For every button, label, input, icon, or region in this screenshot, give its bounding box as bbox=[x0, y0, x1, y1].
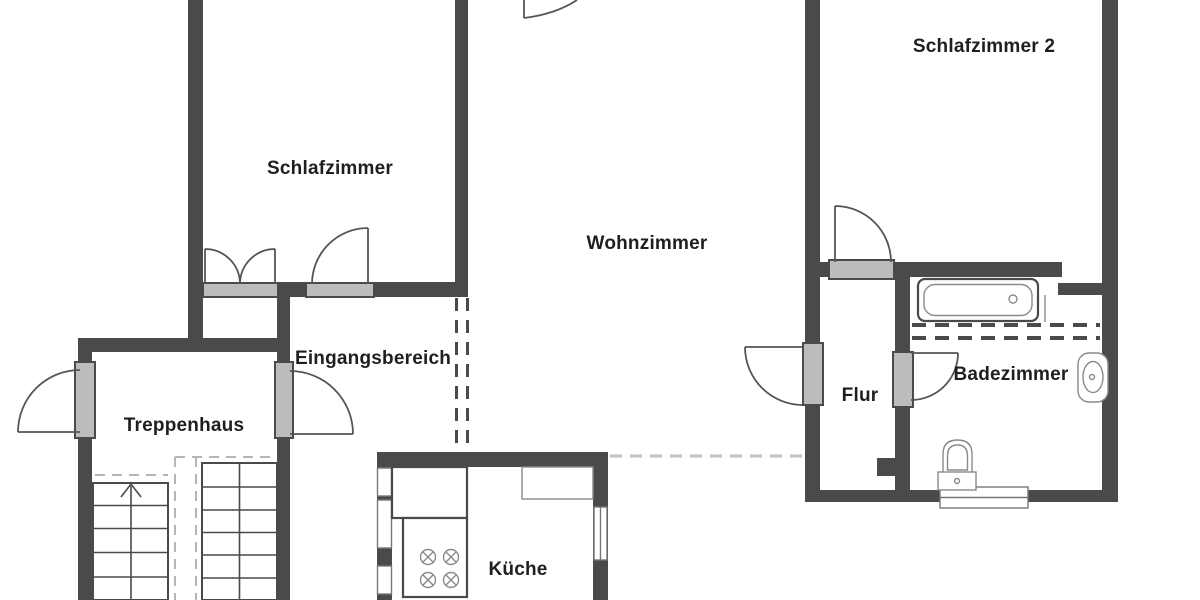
closet-double-door bbox=[205, 249, 275, 284]
windows bbox=[378, 467, 1029, 594]
closet-door-sill bbox=[203, 283, 278, 297]
schlafzimmer-left-wall bbox=[188, 0, 203, 352]
room-label-wohnzimmer: Wohnzimmer bbox=[587, 233, 708, 255]
balcony-door bbox=[524, 0, 577, 18]
flur-door bbox=[745, 347, 803, 405]
bathtub bbox=[918, 279, 1038, 321]
schlafzimmer2-door-sill bbox=[829, 260, 894, 279]
schlafzimmer-right-wall bbox=[455, 0, 468, 297]
stairs bbox=[93, 457, 277, 600]
treppenhaus-exterior-door-sill bbox=[75, 362, 95, 438]
room-label-flur: Flur bbox=[842, 385, 879, 407]
divider-wall-stub bbox=[877, 458, 895, 476]
kueche-right-window bbox=[594, 507, 607, 560]
room-label-schlafzimmer: Schlafzimmer bbox=[267, 158, 393, 180]
stair-flight-right bbox=[202, 463, 277, 600]
room-label-treppenhaus: Treppenhaus bbox=[124, 415, 244, 437]
room-label-badezimmer: Badezimmer bbox=[954, 364, 1069, 386]
bad-door-sill bbox=[893, 352, 913, 407]
treppenhaus-exterior-door bbox=[18, 370, 80, 432]
toilet bbox=[938, 440, 976, 490]
room-label-schlafzimmer-2: Schlafzimmer 2 bbox=[913, 36, 1055, 58]
bad-door bbox=[911, 353, 958, 400]
right-outer-wall bbox=[1102, 0, 1118, 502]
floor-plan: Schlafzimmer Wohnzimmer Schlafzimmer 2 E… bbox=[0, 0, 1200, 600]
apartment-entry-door-sill bbox=[275, 362, 293, 438]
apartment-entry-door bbox=[290, 371, 353, 434]
schlafzimmer-door-sill bbox=[306, 283, 374, 297]
stair-flight-left bbox=[93, 483, 168, 600]
schlafzimmer2-door bbox=[835, 206, 891, 262]
kitchen-counter bbox=[392, 467, 467, 518]
wohnzimmer-right-wall bbox=[805, 0, 820, 497]
flur-door-sill bbox=[803, 343, 823, 405]
floor-plan-drawing bbox=[0, 0, 1200, 600]
room-label-eingangsbereich: Eingangsbereich bbox=[295, 348, 451, 370]
kueche-left-wall-openings bbox=[378, 468, 392, 594]
washbasin bbox=[1078, 353, 1108, 402]
room-label-kueche: Küche bbox=[488, 559, 547, 581]
schlafzimmer-door bbox=[312, 228, 368, 284]
kueche-pass-through-niche bbox=[522, 467, 593, 499]
stove bbox=[403, 518, 467, 597]
kitchen-fixtures bbox=[392, 467, 467, 597]
bath-niche-wall bbox=[1058, 283, 1102, 295]
kueche-top-wall bbox=[377, 452, 608, 467]
treppenhaus-top-wall bbox=[78, 338, 290, 352]
